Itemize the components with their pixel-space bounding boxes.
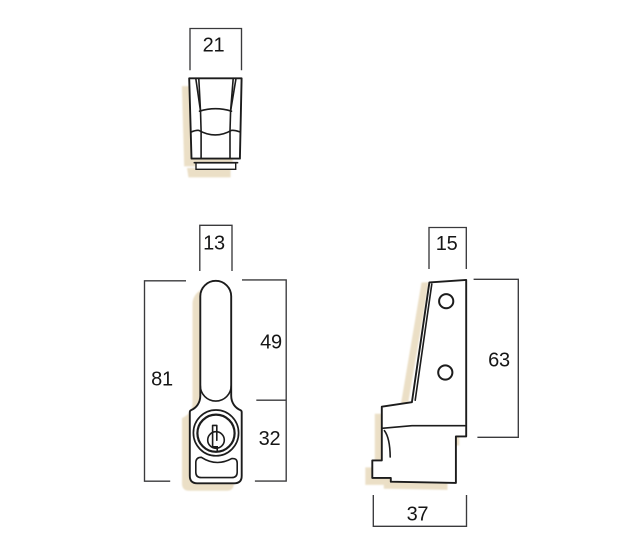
svg-text:21: 21	[203, 35, 225, 57]
svg-text:13: 13	[203, 233, 225, 255]
svg-text:63: 63	[488, 350, 510, 372]
svg-text:49: 49	[260, 331, 282, 353]
svg-text:32: 32	[259, 428, 281, 450]
svg-text:81: 81	[151, 369, 173, 391]
svg-text:37: 37	[407, 504, 429, 526]
svg-text:15: 15	[436, 233, 458, 255]
